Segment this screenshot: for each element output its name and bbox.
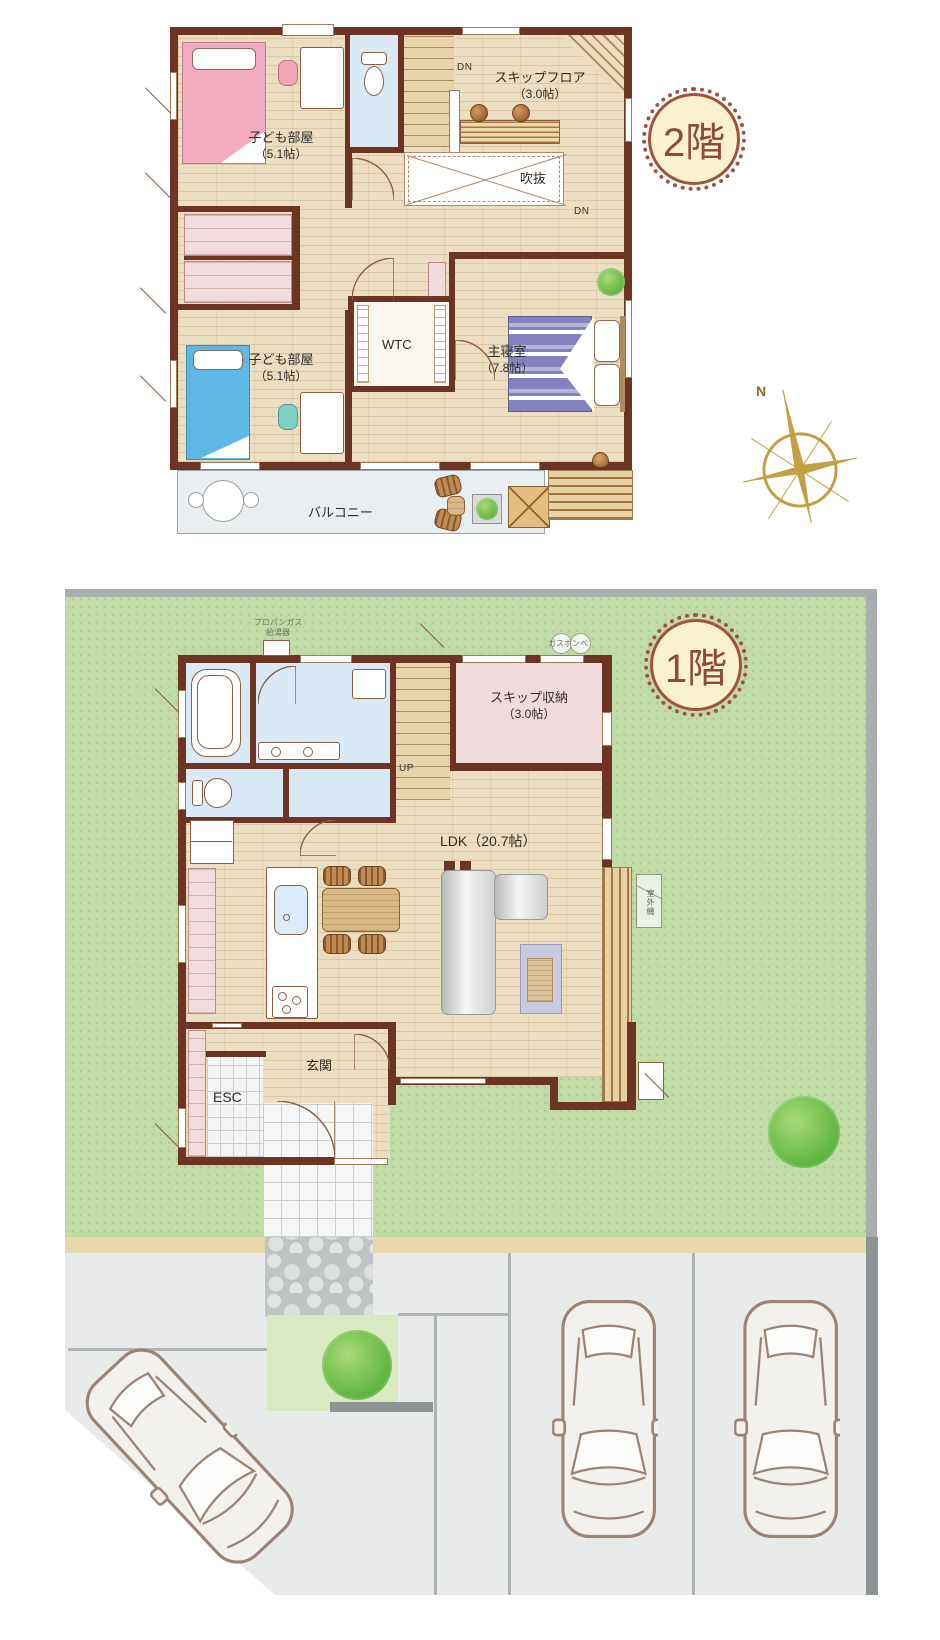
skip-storage-label: スキップ収納 （3.0帖） xyxy=(455,690,603,722)
f2-deck-pot-icon xyxy=(592,452,609,468)
f1-wall-ldk-bottom-b xyxy=(550,1102,636,1110)
parking-line-driveway xyxy=(68,1348,267,1351)
wtc-wall-bottom xyxy=(348,386,455,392)
car-stall-2 xyxy=(727,1280,840,1558)
f2-wall-closet-mid xyxy=(184,256,292,260)
f2-window-right1 xyxy=(625,98,632,142)
kids1-closet xyxy=(184,214,292,256)
f2-window-right2 xyxy=(625,300,632,378)
laundry-door-arc xyxy=(300,820,336,856)
water-heater-unit xyxy=(263,640,290,656)
master-door-arc xyxy=(455,340,495,380)
f1-up-label: UP xyxy=(399,763,414,774)
f1-window-left1 xyxy=(178,690,186,738)
water-heater-line2: 給湯器 xyxy=(235,628,321,638)
f1-wall-skip-bottom xyxy=(450,763,612,771)
master-pillow-1 xyxy=(594,320,620,362)
f2-toilet-tank xyxy=(361,52,387,65)
f2-deck xyxy=(548,470,633,520)
kids1-desk xyxy=(300,47,344,109)
floor1-badge: 1階 xyxy=(650,619,742,711)
site-shadow-right xyxy=(866,589,877,1237)
f2-toilet-bowl xyxy=(364,66,384,96)
stove-burner-2 xyxy=(292,996,301,1005)
f2-stairs-railing xyxy=(449,90,460,158)
vanity-counter xyxy=(258,742,340,760)
front-door xyxy=(334,1158,388,1165)
f2-tick-4 xyxy=(140,375,166,401)
f2-tick-3 xyxy=(140,287,166,313)
skipfloor-stool-2 xyxy=(512,104,530,122)
balcony-round-table xyxy=(202,480,244,522)
lawn-bush-icon xyxy=(768,1096,840,1168)
f2-tick-2 xyxy=(145,172,171,198)
kids2-desk xyxy=(300,392,344,454)
sidewalk-strip xyxy=(65,1237,866,1253)
f1-window-top1 xyxy=(300,655,352,663)
f1-window-left4 xyxy=(178,1108,186,1148)
garden-curb xyxy=(330,1402,433,1412)
car-stall-2-icon xyxy=(727,1280,840,1558)
parking-line-v2 xyxy=(508,1253,511,1595)
balcony-label: バルコニー xyxy=(308,505,373,522)
skip-storage-size: （3.0帖） xyxy=(455,707,603,723)
f1-window-left2 xyxy=(178,782,186,810)
dining-chair-3 xyxy=(323,934,351,954)
f2-tick-1 xyxy=(145,87,171,113)
f2-window-top1 xyxy=(282,24,334,36)
f1-window-ldk-bottom xyxy=(400,1078,486,1084)
compass-icon: N xyxy=(712,378,882,528)
front-door-arc xyxy=(277,1101,335,1159)
skipfloor-stool-1 xyxy=(470,104,488,122)
f2-stairs xyxy=(404,35,454,147)
pantry-shelf xyxy=(188,868,216,1014)
f2-dn-bottom-label: DN xyxy=(574,206,589,217)
skipfloor-counter xyxy=(460,120,560,144)
kids2-door-arc xyxy=(352,258,394,300)
kitchen-sink xyxy=(274,885,308,935)
f2-wall-closet-bottom xyxy=(178,304,300,310)
kids2-closet xyxy=(184,261,292,303)
f1-window-right2 xyxy=(602,818,612,860)
ldk-label: LDK（20.7帖） xyxy=(440,832,536,850)
balcony-planter xyxy=(472,494,502,524)
kids1-chair xyxy=(278,60,298,86)
car-stall-1 xyxy=(545,1280,658,1558)
stove-burner-3 xyxy=(282,1005,291,1014)
sofa-main xyxy=(441,870,496,1015)
skip-storage-name: スキップ収納 xyxy=(455,690,603,707)
car-stall-1-icon xyxy=(545,1280,658,1558)
parking-line-v3 xyxy=(692,1253,695,1595)
stove-burner-1 xyxy=(278,992,287,1001)
outdoor-unit-box: 室外機 xyxy=(636,874,662,928)
skipfloor-name: スキップフロア xyxy=(465,70,615,87)
wtc-shelf-left xyxy=(357,305,369,383)
compass-north-label: N xyxy=(756,383,766,399)
vanity-sink-1 xyxy=(271,747,281,757)
wtc-wall-left xyxy=(348,296,354,392)
balcony-plant-icon xyxy=(476,498,498,520)
balcony-stool-2 xyxy=(243,492,259,508)
toilet-bowl xyxy=(204,778,232,808)
esc-floor xyxy=(207,1057,263,1157)
f1-folding-door-pantry xyxy=(212,1023,242,1028)
gas-cylinder-label: ガスボンベ xyxy=(548,639,588,649)
dining-chair-1 xyxy=(323,866,351,886)
kids2-room-label: 子ども部屋 （5.1帖） xyxy=(216,352,346,384)
dining-chair-4 xyxy=(358,934,386,954)
washing-machine xyxy=(352,669,386,699)
kids1-size: （5.1帖） xyxy=(216,147,346,163)
toilet-tank xyxy=(192,780,203,806)
shoe-shelf xyxy=(188,1030,206,1157)
parking-curb-right xyxy=(866,1237,878,1595)
kids1-pillow xyxy=(192,48,256,70)
kids2-size: （5.1帖） xyxy=(216,369,346,385)
floor1-badge-label: 1階 xyxy=(665,636,727,694)
dining-chair-2 xyxy=(358,866,386,886)
storage-cabinet xyxy=(190,820,234,864)
f2-wall-closet-right xyxy=(292,206,300,310)
floor2-badge-label: 2階 xyxy=(663,110,725,168)
f2-wall-closet-top xyxy=(178,206,300,212)
kids2-chair xyxy=(278,404,298,430)
balcony-parasol-table xyxy=(508,486,550,528)
f1-window-top2 xyxy=(462,655,526,663)
garden-bush-icon xyxy=(322,1330,392,1400)
parking-line-v1 xyxy=(434,1315,437,1595)
kids2-blanket-fold xyxy=(201,424,249,458)
void-label: 吹抜 xyxy=(518,171,548,188)
floorplan-page: 子ども部屋 （5.1帖） 子ども部屋 （5.1帖） DN xyxy=(0,0,940,1640)
porch-tile-floor xyxy=(263,1163,373,1237)
f2-window-bottom2 xyxy=(360,462,440,470)
f1-window-top3 xyxy=(540,655,584,663)
wtc-label: WTC xyxy=(382,337,412,354)
balcony-side-table xyxy=(447,496,465,516)
f1-window-left3 xyxy=(178,905,186,963)
bathtub xyxy=(191,669,241,757)
f1-window-right1 xyxy=(602,712,612,746)
kitchen-stove xyxy=(272,986,308,1018)
entrance-label: 玄関 xyxy=(306,1058,332,1075)
f2-window-bottom1 xyxy=(200,462,260,470)
water-heater-line1: プロパンガス xyxy=(235,618,321,628)
f1-stairs xyxy=(396,663,450,800)
storage-cabinet-divider xyxy=(191,841,232,842)
parking-line-h1 xyxy=(398,1313,510,1316)
f1-wall-deck-right-lower xyxy=(627,1022,636,1110)
skipfloor-size: （3.0帖） xyxy=(465,87,615,103)
washroom-door-arc xyxy=(258,666,296,704)
sofa-chaise xyxy=(494,874,548,920)
kids2-name: 子ども部屋 xyxy=(216,352,346,369)
wtc-shelf-right xyxy=(434,305,446,383)
f2-wall-toilet-bottom xyxy=(350,147,404,153)
water-heater-label: プロパンガス 給湯器 xyxy=(235,618,321,637)
vanity-sink-2 xyxy=(303,747,313,757)
kitchen-faucet xyxy=(283,914,290,921)
f2-window-top2 xyxy=(462,27,520,35)
balcony-stool-1 xyxy=(188,492,204,508)
f2-wall-master-top xyxy=(449,252,632,259)
floor2-badge: 2階 xyxy=(648,93,740,185)
esc-label: ESC xyxy=(213,1088,242,1106)
skipfloor-label: スキップフロア （3.0帖） xyxy=(465,70,615,102)
master-pillow-2 xyxy=(594,364,620,406)
kids1-name: 子ども部屋 xyxy=(216,130,346,147)
bathtub-inner xyxy=(197,675,233,749)
genkan-ldk-door-arc xyxy=(354,1034,390,1070)
f2-hall-closet xyxy=(428,262,446,300)
dining-table xyxy=(322,888,400,932)
f2-plant-icon xyxy=(597,268,625,296)
kids1-door-arc xyxy=(352,158,394,200)
f2-window-left2 xyxy=(170,360,177,408)
tv-screen xyxy=(527,958,553,1002)
f2-window-bottom3 xyxy=(470,462,540,470)
outdoor-unit-label: 室外機 xyxy=(645,889,656,916)
laundry-room xyxy=(289,769,390,817)
kids1-room-label: 子ども部屋 （5.1帖） xyxy=(216,130,346,162)
